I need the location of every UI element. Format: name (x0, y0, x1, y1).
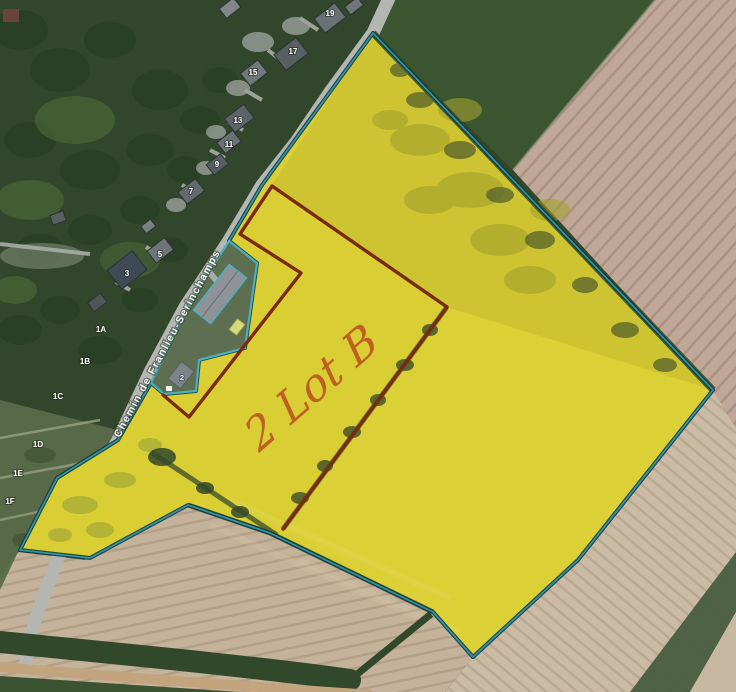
house-number-label: 1E (13, 469, 23, 478)
excluded-parcel-number: 2 (180, 373, 184, 382)
house-number-label: 11 (225, 140, 234, 149)
house-number-label: 1F (5, 497, 14, 506)
house-number-label: 19 (326, 9, 335, 18)
house-number-label: 1C (53, 392, 63, 401)
house-number-label: 7 (189, 187, 194, 196)
satellite-map: 2 Chemin de Franlieu-Serinchamps 1917151… (0, 0, 736, 692)
aerial-photo-canvas: 2 Chemin de Franlieu-Serinchamps 1917151… (0, 0, 736, 692)
house-number-label: 9 (215, 160, 220, 169)
house-number-label: 5 (158, 250, 163, 259)
house-number-label: 13 (234, 116, 243, 125)
building-footprint (3, 9, 19, 22)
house-number-label: 1B (80, 357, 90, 366)
house-number-label: 1D (33, 440, 43, 449)
house-number-label: 15 (249, 68, 258, 77)
house-number-label: 3 (125, 269, 130, 278)
house-number-label: 17 (289, 47, 298, 56)
house-number-label: 1A (96, 325, 106, 334)
white-structure (166, 386, 172, 391)
